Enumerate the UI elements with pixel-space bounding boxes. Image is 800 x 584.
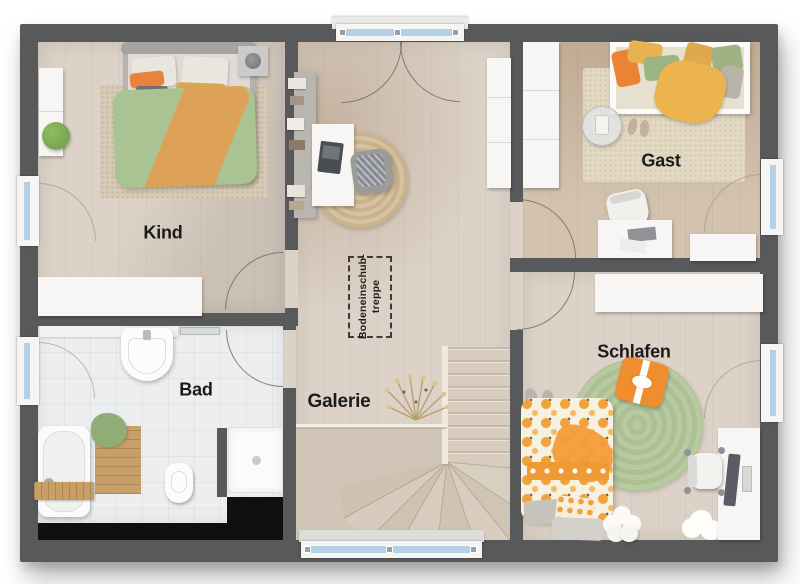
gast-wardrobe-divider-2 xyxy=(523,139,559,140)
schlafen-cloud-rug xyxy=(682,510,722,540)
schlafen-pillow-gray-2 xyxy=(552,517,605,541)
bad-washbasin xyxy=(121,328,173,381)
galerie-books-3 xyxy=(287,118,304,130)
roof-void-notch xyxy=(227,497,283,523)
flower-table-petal-5 xyxy=(620,525,638,542)
galerie-books-5 xyxy=(287,185,305,197)
wall-galerie-gast xyxy=(510,42,523,202)
door-opening-bad xyxy=(283,330,296,388)
room-label-bad: Bad xyxy=(179,380,212,401)
galerie-laptop xyxy=(317,141,344,175)
wall-shower-partition xyxy=(217,428,227,497)
bad-toilet-seat xyxy=(171,471,187,493)
room-label-gast: Gast xyxy=(641,151,680,172)
bad-shower-drain xyxy=(252,456,261,465)
kind-plant xyxy=(42,122,70,150)
attic-hatch-label: Bodeneinschub- treppe xyxy=(357,254,383,339)
window-gast xyxy=(761,159,783,235)
window-galerie-south xyxy=(301,541,482,558)
gast-wardrobe xyxy=(523,42,559,188)
galerie-books-1 xyxy=(288,78,306,89)
galerie-books-2 xyxy=(290,96,304,105)
french-door-glass xyxy=(341,29,459,36)
kind-sideboard xyxy=(38,277,202,316)
bad-toilet xyxy=(163,463,195,507)
galerie-armchair xyxy=(349,147,395,195)
bad-washbasin-bowl xyxy=(128,338,166,374)
bad-shower-tray xyxy=(228,427,283,493)
bad-faucet-icon xyxy=(143,330,151,340)
attic-hatch-label-line2: treppe xyxy=(370,254,383,339)
kind-duvet-throw-orange xyxy=(137,86,253,189)
schlafen-office-chair xyxy=(682,447,726,495)
bad-bath-caddy xyxy=(34,482,94,500)
schlafen-keyboard xyxy=(742,466,752,492)
room-label-kind: Kind xyxy=(143,223,182,244)
schlafen-duvet-band xyxy=(527,462,609,480)
galerie-books-4 xyxy=(289,140,305,150)
galerie-closet-divider-2 xyxy=(487,142,511,143)
office-chair-caster-1 xyxy=(684,449,691,456)
kind-duvet-green xyxy=(112,86,257,189)
window-south-handle-left xyxy=(305,547,310,552)
window-bad-glass xyxy=(24,343,30,399)
window-gast-glass xyxy=(770,165,776,229)
window-south-handle-right xyxy=(471,547,476,552)
french-door-handle-center xyxy=(395,30,400,35)
dried-flowers-decor xyxy=(380,374,452,428)
roof-void-strip xyxy=(38,523,283,540)
french-door-handle-left xyxy=(340,30,345,35)
staircase xyxy=(296,340,510,540)
stairs-straight-flight xyxy=(445,348,510,465)
bad-towel-rail xyxy=(180,327,220,335)
office-chair-caster-4 xyxy=(718,489,725,496)
attic-hatch-outline: Bodeneinschub- treppe xyxy=(348,256,392,338)
bad-bathtub xyxy=(38,426,90,517)
gast-wardrobe-divider-1 xyxy=(523,90,559,91)
window-south-handle-center xyxy=(387,547,392,552)
floor-plan: Kind Bad Bodeneinschub- tre xyxy=(0,0,800,584)
attic-hatch-label-line1: Bodeneinschub- xyxy=(357,254,369,339)
cloud-rug-blob-2 xyxy=(682,518,702,538)
schlafen-sideboard xyxy=(595,274,763,312)
window-bad xyxy=(17,337,39,405)
gast-desk-paper xyxy=(619,238,646,254)
gast-side-table xyxy=(582,106,622,146)
office-chair-back xyxy=(688,455,697,487)
window-schlafen-glass xyxy=(770,350,776,416)
bad-towel-green xyxy=(91,413,127,447)
galerie-books-6 xyxy=(289,201,304,210)
galerie-closet-divider-1 xyxy=(487,97,511,98)
wall-bad-east-upper xyxy=(283,313,296,330)
kind-nightstand-lamp xyxy=(245,53,261,69)
office-chair-caster-3 xyxy=(684,487,691,494)
wall-bad-east-lower xyxy=(283,388,296,540)
door-opening-kind xyxy=(285,250,298,308)
gast-decanter xyxy=(595,115,609,135)
window-kind xyxy=(17,176,39,246)
gast-desk xyxy=(598,220,672,258)
gast-lowboard xyxy=(690,234,756,261)
french-door-galerie xyxy=(336,24,464,41)
french-door-handle-right xyxy=(453,30,458,35)
kind-wardrobe-divider xyxy=(39,111,63,112)
window-kind-glass xyxy=(24,182,30,240)
office-chair-caster-2 xyxy=(718,447,725,454)
galerie-armchair-cushion xyxy=(355,152,387,188)
galerie-closet xyxy=(487,58,511,188)
galerie-laptop-screen xyxy=(322,145,340,160)
schlafen-flower-table xyxy=(603,506,641,542)
kind-nightstand xyxy=(238,46,268,76)
schlafen-pillow-bow-knot xyxy=(631,374,653,390)
room-label-schlafen: Schlafen xyxy=(597,342,670,363)
window-schlafen xyxy=(761,344,783,422)
